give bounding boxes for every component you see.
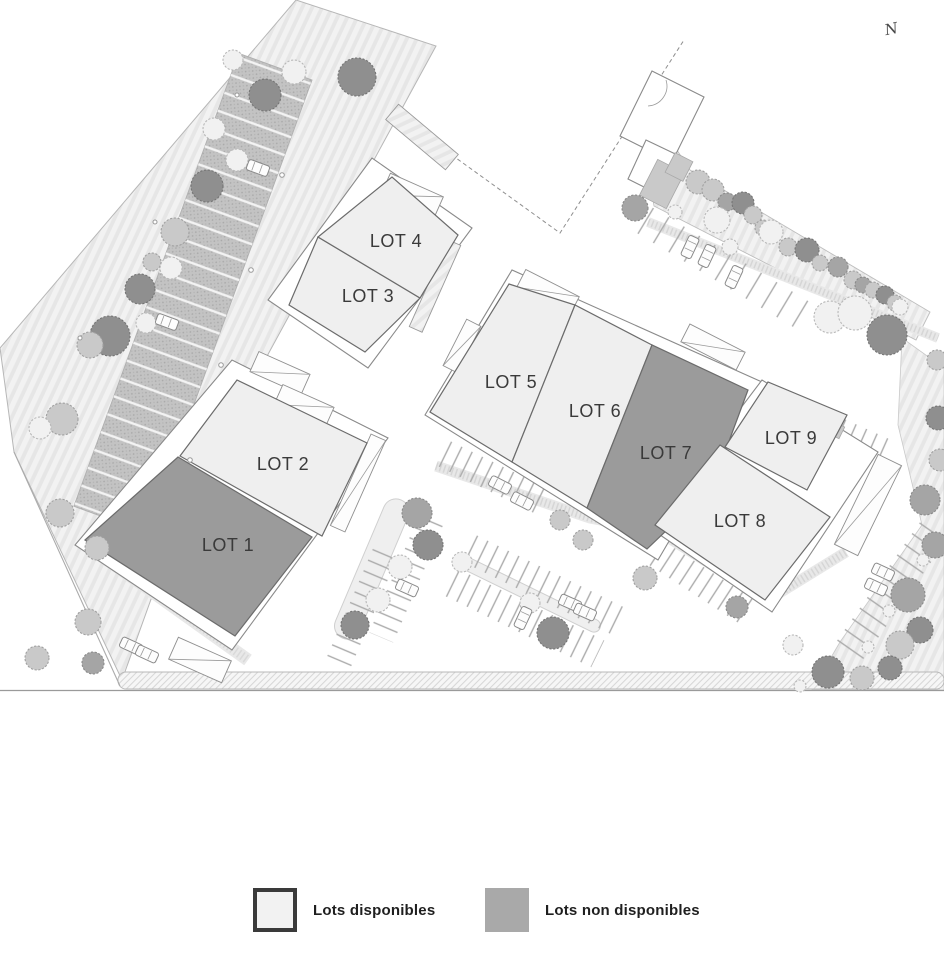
lot-3-label: LOT 3 xyxy=(342,286,394,306)
legend-item-unavailable: Lots non disponibles xyxy=(485,888,700,932)
lot-8-label: LOT 8 xyxy=(714,511,766,531)
north-arrow-icon: N xyxy=(882,19,900,40)
lot-9-label: LOT 9 xyxy=(765,428,817,448)
lot-6-label: LOT 6 xyxy=(569,401,621,421)
legend-swatch-unavailable xyxy=(485,888,529,932)
legend: Lots disponibles Lots non disponibles xyxy=(0,872,944,960)
lot-7-label: LOT 7 xyxy=(640,443,692,463)
lot-2-label: LOT 2 xyxy=(257,454,309,474)
lot-1-label: LOT 1 xyxy=(202,535,254,555)
lot-5-label: LOT 5 xyxy=(485,372,537,392)
legend-item-available: Lots disponibles xyxy=(253,888,435,932)
site-plan-canvas: LOT 1 LOT 2 LOT 3 LOT 4 LOT 5 LOT 6 LOT … xyxy=(0,0,944,960)
lot-4-label: LOT 4 xyxy=(370,231,422,251)
legend-swatch-available xyxy=(253,888,297,932)
legend-label-available: Lots disponibles xyxy=(313,902,435,919)
legend-label-unavailable: Lots non disponibles xyxy=(545,902,700,919)
site-plan-page: LOT 1 LOT 2 LOT 3 LOT 4 LOT 5 LOT 6 LOT … xyxy=(0,0,944,960)
